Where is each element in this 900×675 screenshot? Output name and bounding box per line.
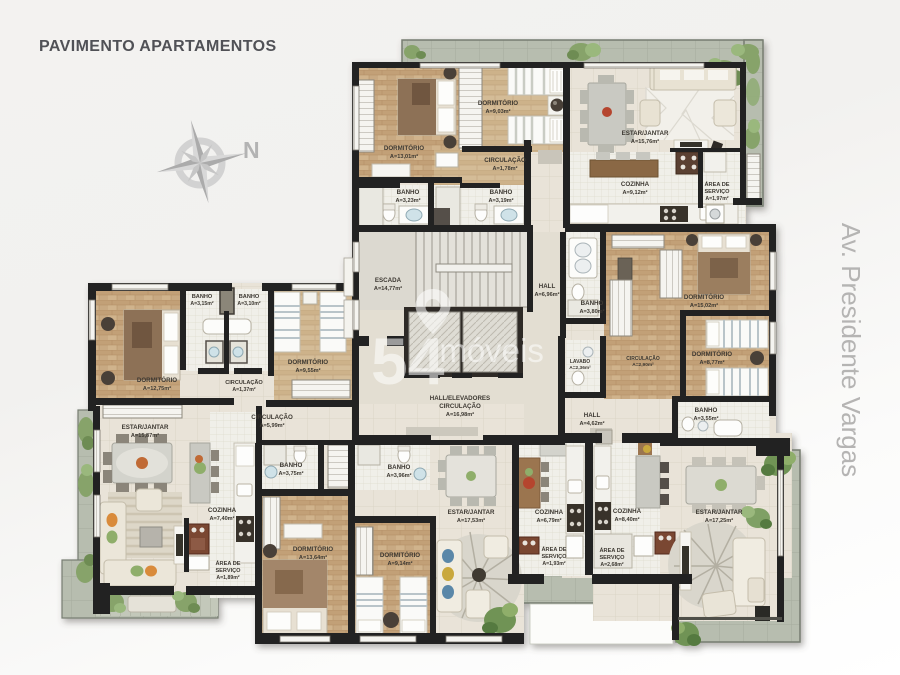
svg-text:DORMITÓRIO: DORMITÓRIO <box>288 358 328 366</box>
svg-text:ÁREA DE: ÁREA DE <box>600 547 625 554</box>
svg-text:A=3,96m²: A=3,96m² <box>386 472 411 479</box>
svg-text:DORMITÓRIO: DORMITÓRIO <box>692 350 732 358</box>
svg-text:A=17,53m²: A=17,53m² <box>457 517 485 524</box>
svg-text:imóveis: imóveis <box>432 332 544 369</box>
svg-text:CIRCULAÇÃO: CIRCULAÇÃO <box>484 157 526 164</box>
svg-text:COZINHA: COZINHA <box>613 508 642 515</box>
svg-text:A=2,36m²: A=2,36m² <box>569 365 591 371</box>
svg-text:A=1,93m²: A=1,93m² <box>542 561 565 567</box>
svg-text:A=8,77m²: A=8,77m² <box>699 359 724 366</box>
svg-text:BANHO: BANHO <box>192 294 213 300</box>
svg-text:CIRCULAÇÃO: CIRCULAÇÃO <box>626 355 660 362</box>
svg-text:ESCADA: ESCADA <box>375 277 402 284</box>
svg-text:A=12,75m²: A=12,75m² <box>143 385 171 392</box>
svg-text:A=14,77m²: A=14,77m² <box>374 285 402 292</box>
svg-text:ESTAR/JANTAR: ESTAR/JANTAR <box>696 509 743 516</box>
svg-text:DORMITÓRIO: DORMITÓRIO <box>137 376 177 384</box>
svg-text:A=3,55m²: A=3,55m² <box>693 415 718 422</box>
svg-text:A=3,75m²: A=3,75m² <box>278 470 303 477</box>
svg-text:COZINHA: COZINHA <box>621 181 650 188</box>
svg-text:A=17,25m²: A=17,25m² <box>705 517 733 524</box>
svg-text:SERVIÇO: SERVIÇO <box>704 189 730 195</box>
svg-text:ÁREA DE: ÁREA DE <box>705 181 730 188</box>
svg-text:ESTAR/JANTAR: ESTAR/JANTAR <box>122 424 169 431</box>
svg-text:BANHO: BANHO <box>239 294 260 300</box>
svg-text:BANHO: BANHO <box>280 462 303 469</box>
svg-text:SERVIÇO: SERVIÇO <box>599 555 625 561</box>
svg-text:BANHO: BANHO <box>490 189 513 196</box>
svg-text:A=1,89m²: A=1,89m² <box>216 575 239 581</box>
svg-text:Av. Presidente Vargas: Av. Presidente Vargas <box>836 223 866 477</box>
svg-text:A=8,40m²: A=8,40m² <box>614 516 639 523</box>
svg-text:A=1,37m²: A=1,37m² <box>232 387 255 393</box>
svg-text:A=9,03m²: A=9,03m² <box>485 108 510 115</box>
svg-text:A=15,87m²: A=15,87m² <box>131 432 159 439</box>
svg-text:A=13,64m²: A=13,64m² <box>299 554 327 561</box>
svg-text:BANHO: BANHO <box>397 189 420 196</box>
svg-text:A=1,78m²: A=1,78m² <box>492 165 517 172</box>
svg-text:A=3,10m²: A=3,10m² <box>237 301 260 307</box>
svg-text:LAVABO: LAVABO <box>570 359 590 365</box>
svg-text:A=1,97m²: A=1,97m² <box>705 196 728 202</box>
svg-text:SERVIÇO: SERVIÇO <box>215 568 241 574</box>
svg-text:BANHO: BANHO <box>581 300 604 307</box>
svg-text:CIRCULAÇÃO: CIRCULAÇÃO <box>225 379 263 386</box>
svg-text:COZINHA: COZINHA <box>208 507 237 514</box>
svg-text:A=9,55m²: A=9,55m² <box>295 367 320 374</box>
svg-text:A=9,14m²: A=9,14m² <box>387 560 412 567</box>
svg-text:ÁREA DE: ÁREA DE <box>216 560 241 567</box>
svg-text:COZINHA: COZINHA <box>535 509 564 516</box>
svg-text:A=15,02m²: A=15,02m² <box>690 302 718 309</box>
svg-text:A=4,62m²: A=4,62m² <box>579 420 604 427</box>
svg-text:A=2,90m²: A=2,90m² <box>632 362 654 368</box>
svg-text:A=7,40m²: A=7,40m² <box>209 515 234 522</box>
svg-text:A=3,19m²: A=3,19m² <box>488 197 513 204</box>
svg-text:A=6,96m²: A=6,96m² <box>534 291 559 298</box>
svg-text:DORMITÓRIO: DORMITÓRIO <box>478 99 518 107</box>
svg-text:DORMITÓRIO: DORMITÓRIO <box>293 545 333 553</box>
svg-text:A=3,23m²: A=3,23m² <box>395 197 420 204</box>
svg-text:BANHO: BANHO <box>388 464 411 471</box>
svg-text:ÁREA DE: ÁREA DE <box>542 546 567 553</box>
svg-text:BANHO: BANHO <box>695 407 718 414</box>
svg-text:CIRCULAÇÃO: CIRCULAÇÃO <box>251 414 293 421</box>
svg-text:DORMITÓRIO: DORMITÓRIO <box>684 293 724 301</box>
svg-text:A=16,98m²: A=16,98m² <box>446 411 474 418</box>
svg-text:DORMITÓRIO: DORMITÓRIO <box>380 551 420 559</box>
svg-text:A=13,01m²: A=13,01m² <box>390 153 418 160</box>
svg-text:A=6,79m²: A=6,79m² <box>536 517 561 524</box>
svg-text:DORMITÓRIO: DORMITÓRIO <box>384 144 424 152</box>
svg-text:A=5,99m²: A=5,99m² <box>259 422 284 429</box>
svg-text:ESTAR/JANTAR: ESTAR/JANTAR <box>622 130 669 137</box>
svg-text:A=2,68m²: A=2,68m² <box>600 562 623 568</box>
svg-text:A=3,80m²: A=3,80m² <box>579 308 604 315</box>
svg-text:HALL: HALL <box>539 283 556 290</box>
svg-text:A=15,76m²: A=15,76m² <box>631 138 659 145</box>
svg-text:A=9,12m²: A=9,12m² <box>622 189 647 196</box>
svg-text:CIRCULAÇÃO: CIRCULAÇÃO <box>439 403 481 410</box>
svg-text:A=3,15m²: A=3,15m² <box>190 301 213 307</box>
svg-text:ESTAR/JANTAR: ESTAR/JANTAR <box>448 509 495 516</box>
svg-text:SERVIÇO: SERVIÇO <box>541 554 567 560</box>
svg-text:PAVIMENTO APARTAMENTOS: PAVIMENTO APARTAMENTOS <box>39 38 277 55</box>
svg-text:HALL: HALL <box>584 412 601 419</box>
svg-text:N: N <box>243 137 260 163</box>
